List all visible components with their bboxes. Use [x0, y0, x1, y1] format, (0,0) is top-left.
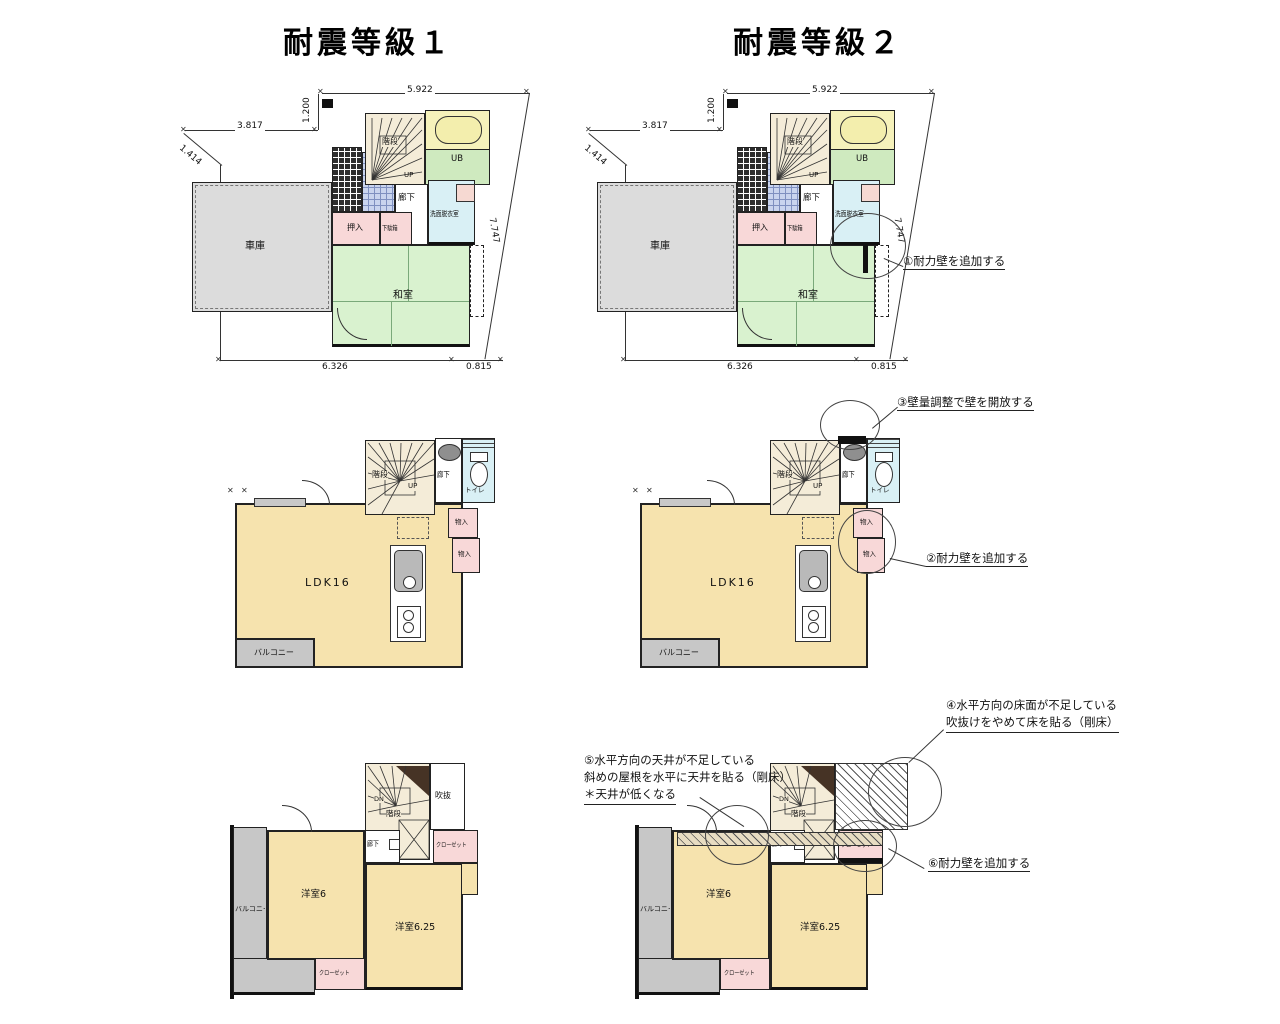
balcony-bottom — [638, 958, 720, 995]
room-stairs: 階段 UP — [770, 440, 840, 515]
annotation-5-line1: ⑤水平方向の天井が不足している — [584, 752, 791, 769]
label-getabako: 下駄箱 — [382, 225, 398, 232]
dim-bottom-right: 0.815 — [464, 362, 494, 372]
highlight-circle-1 — [830, 213, 906, 279]
annotation-6-text: ⑥耐力壁を追加する — [928, 856, 1030, 872]
dim-x-icon: ✕ — [902, 355, 909, 364]
label-up: UP — [809, 172, 818, 180]
label-tatami: 和室 — [798, 290, 818, 301]
room-stairs: 階段 UP — [770, 113, 830, 185]
label-balcony: バルコニー — [640, 906, 670, 914]
label-bedroom-a: 洋室6 — [301, 890, 326, 900]
boundary-x-icon: ✕ — [227, 486, 234, 495]
room-bath: UB — [830, 110, 895, 185]
room-toilet: トイレ — [867, 438, 900, 503]
label-hallway: 廊下 — [398, 194, 415, 203]
room-toilet: トイレ — [462, 438, 495, 503]
room-garage: 車庫 — [192, 182, 332, 312]
annotation-3: ③壁量調整で壁を開放する — [897, 394, 1034, 411]
highlight-circle-4 — [868, 757, 942, 827]
toilet-bowl-icon — [470, 462, 488, 487]
label-balcony: バルコニー — [235, 906, 265, 914]
annotation-5-line3: ＊天井が低くなる — [584, 786, 676, 805]
room-bedroom-b: 洋室6.25 — [365, 863, 463, 990]
balcony-bottom — [233, 958, 315, 995]
dim-bottom-main: 6.326 — [320, 362, 350, 372]
label-up: UP — [813, 483, 822, 491]
room-garage: 車庫 — [597, 182, 737, 312]
stairs-icon — [771, 114, 831, 186]
dim-top-width: 5.922 — [405, 85, 435, 95]
annotation-5-line2: 斜めの屋根を水平に天井を貼る（剛床） — [584, 769, 791, 786]
label-hallway: 廊下 — [367, 841, 379, 849]
dim-bottom-main: 6.326 — [725, 362, 755, 372]
annotation-1-text: ①耐力壁を追加する — [903, 254, 1005, 270]
room-closet-a: クローゼット — [433, 830, 478, 863]
dim-x-icon: ✕ — [716, 125, 723, 134]
dim-x-icon: ✕ — [448, 355, 455, 364]
dim-entry-offset: 1.200 — [707, 95, 717, 125]
label-toilet: トイレ — [465, 487, 485, 494]
washer-pan-icon — [456, 184, 475, 202]
dim-line-entry — [723, 94, 724, 130]
annotation-5: ⑤水平方向の天井が不足している 斜めの屋根を水平に天井を貼る（剛床） ＊天井が低… — [584, 752, 791, 805]
annotation-2: ②耐力壁を追加する — [926, 550, 1028, 567]
dim-left-top: 3.817 — [640, 121, 670, 131]
kitchen-counter — [390, 545, 426, 642]
annotation-4-line1: ④水平方向の床面が不足している — [946, 697, 1119, 714]
room-void: 吹抜 — [430, 763, 465, 830]
room-closet-b: クローゼット — [315, 958, 365, 990]
highlight-circle-3 — [820, 400, 880, 450]
label-hallway: 廊下 — [803, 194, 820, 203]
tatami-line — [391, 301, 392, 346]
label-washroom: 洗面脱衣室 — [430, 211, 459, 219]
label-stairs: 階段 — [372, 471, 388, 480]
annotation-4-line2: 吹抜けをやめて床を貼る（剛床） — [946, 714, 1119, 733]
room-bath: UB — [425, 110, 490, 185]
boundary-x-icon: ✕ — [646, 486, 653, 495]
bathtub-icon — [435, 116, 482, 144]
dim-bottom-right: 0.815 — [869, 362, 899, 372]
kitchen-sink-icon — [799, 550, 828, 592]
page: 耐震等級１ 耐震等級２ 5.922 ✕ ✕ 1.200 3.817 ✕ ✕ 1.… — [0, 0, 1280, 1024]
room-storage-b: 物入 — [452, 538, 480, 573]
burner-icon — [403, 610, 414, 621]
floorplan-3f: バルコニー 洋室6 洋室6.25 クローゼット クローゼット — [225, 755, 490, 1015]
room-closet-b: クローゼット — [720, 958, 770, 990]
room-balcony: バルコニー — [640, 638, 720, 668]
label-balcony: バルコニー — [659, 649, 699, 658]
floorplan-1f: 5.922 ✕ ✕ 1.200 3.817 ✕ ✕ 1.414 5.364 6.… — [180, 85, 530, 375]
dim-x-icon: ✕ — [311, 125, 318, 134]
kitchen-sink-icon — [394, 550, 423, 592]
open-below-dashed — [397, 517, 429, 539]
toilet-bowl-icon — [875, 462, 893, 487]
room-oshiire: 押入 — [332, 212, 380, 245]
washbasin-icon — [438, 444, 461, 461]
wall-stub — [659, 498, 711, 507]
door-arc-icon — [337, 308, 367, 340]
engawa-strip — [470, 245, 484, 317]
burner-icon — [808, 622, 819, 633]
dim-line-bottom — [625, 360, 908, 361]
dim-x-icon: ✕ — [215, 355, 222, 364]
room-washroom: 洗面脱衣室 — [428, 180, 475, 245]
annotation-1: ①耐力壁を追加する — [903, 253, 1005, 270]
highlight-circle-6 — [833, 820, 897, 872]
label-garage: 車庫 — [650, 241, 670, 252]
dim-line-bottom — [220, 360, 503, 361]
tatami-line — [738, 301, 874, 302]
label-oshiire: 押入 — [347, 224, 363, 233]
door-arc-icon — [302, 480, 330, 505]
label-balcony: バルコニー — [254, 649, 294, 658]
room-balcony: バルコニー — [235, 638, 315, 668]
boundary-x-icon: ✕ — [632, 486, 639, 495]
window-hatch — [463, 439, 494, 448]
porch-tile — [332, 147, 362, 212]
bedroom-b-notch — [461, 863, 478, 895]
room-bedroom-a: 洋室6 — [267, 830, 365, 960]
label-hallway: 廊下 — [842, 471, 855, 479]
room-hallway: 廊下 — [435, 438, 462, 503]
annotation-2-text: ②耐力壁を追加する — [926, 551, 1028, 567]
label-storage-a: 物入 — [455, 519, 468, 526]
annotation-6: ⑥耐力壁を追加する — [928, 855, 1030, 872]
label-bedroom-b: 洋室6.25 — [395, 923, 435, 933]
dim-x-icon: ✕ — [620, 355, 627, 364]
bench-mark-icon — [322, 99, 333, 108]
room-bedroom-b: 洋室6.25 — [770, 863, 868, 990]
label-up: UP — [408, 483, 417, 491]
dim-top-width: 5.922 — [810, 85, 840, 95]
title-grade2: 耐震等級２ — [733, 18, 903, 62]
label-garage: 車庫 — [245, 241, 265, 252]
label-up: UP — [404, 172, 413, 180]
floorplan-2f: LDK16 — [230, 430, 550, 680]
toilet-tank-icon — [470, 452, 488, 462]
bath-upper — [426, 111, 489, 150]
room-getabako: 下駄箱 — [785, 212, 817, 245]
sink-bowl-icon — [403, 576, 416, 589]
room-tatami: 和室 — [332, 245, 470, 347]
stove-icon — [802, 606, 826, 638]
label-bath: UB — [451, 155, 463, 164]
label-bath: UB — [856, 155, 868, 164]
open-below-dashed — [802, 517, 834, 539]
room-hallway: 廊下 — [365, 830, 400, 863]
label-closet-a: クローゼット — [436, 843, 467, 850]
room-stairs: 階段 UP — [365, 440, 435, 515]
door-arc-icon — [707, 480, 735, 505]
dim-left-top: 3.817 — [235, 121, 265, 131]
bench-mark-icon — [727, 99, 738, 108]
highlight-circle-2 — [838, 510, 896, 574]
dim-x-icon: ✕ — [497, 355, 504, 364]
hall-box — [389, 839, 400, 850]
room-storage-a: 物入 — [448, 508, 478, 538]
label-toilet: トイレ — [870, 487, 890, 494]
label-stairs: 階段 — [787, 138, 803, 147]
highlight-circle-5 — [705, 805, 769, 865]
door-arc-icon — [742, 308, 772, 340]
tatami-line — [333, 301, 469, 302]
bath-upper — [831, 111, 894, 150]
label-stairs: 階段 — [382, 138, 398, 147]
label-ldk: LDK16 — [710, 577, 756, 589]
label-stairs: 階段 — [791, 810, 806, 818]
label-void: 吹抜 — [435, 792, 451, 801]
stove-icon — [397, 606, 421, 638]
bathtub-icon — [840, 116, 887, 144]
leader-line-4 — [908, 729, 944, 763]
annotation-3-text: ③壁量調整で壁を開放する — [897, 395, 1034, 411]
floorplan-2f: LDK16 — [635, 430, 955, 680]
label-dn: DN — [374, 796, 384, 803]
sink-bowl-icon — [808, 576, 821, 589]
label-tatami: 和室 — [393, 290, 413, 301]
wall-stub — [254, 498, 306, 507]
dim-entry-offset: 1.200 — [302, 95, 312, 125]
title-grade1: 耐震等級１ — [283, 18, 453, 62]
door-arc-icon — [282, 805, 312, 832]
label-ldk: LDK16 — [305, 577, 351, 589]
burner-icon — [808, 610, 819, 621]
dim-line-entry — [318, 94, 319, 130]
label-storage-b: 物入 — [458, 551, 471, 558]
boundary-x-icon: ✕ — [241, 486, 248, 495]
tatami-line — [796, 301, 797, 346]
room-stairs: 階段 UP — [365, 113, 425, 185]
label-stairs: 階段 — [386, 810, 401, 818]
dim-x-icon: ✕ — [853, 355, 860, 364]
stairs-icon — [366, 114, 426, 186]
label-closet-b: クローゼット — [319, 971, 350, 978]
label-bedroom-a: 洋室6 — [706, 890, 731, 900]
label-hallway: 廊下 — [437, 471, 450, 479]
toilet-tank-icon — [875, 452, 893, 462]
washer-pan-icon — [861, 184, 880, 202]
porch-tile — [737, 147, 767, 212]
room-getabako: 下駄箱 — [380, 212, 412, 245]
annotation-4: ④水平方向の床面が不足している 吹抜けをやめて床を貼る（剛床） — [946, 697, 1119, 733]
label-stairs: 階段 — [777, 471, 793, 480]
burner-icon — [403, 622, 414, 633]
label-closet-b: クローゼット — [724, 971, 755, 978]
label-bedroom-b: 洋室6.25 — [800, 923, 840, 933]
kitchen-counter — [795, 545, 831, 642]
label-oshiire: 押入 — [752, 224, 768, 233]
dim-diag-right: 7.747 — [486, 215, 501, 246]
room-oshiire: 押入 — [737, 212, 785, 245]
label-getabako: 下駄箱 — [787, 225, 803, 232]
